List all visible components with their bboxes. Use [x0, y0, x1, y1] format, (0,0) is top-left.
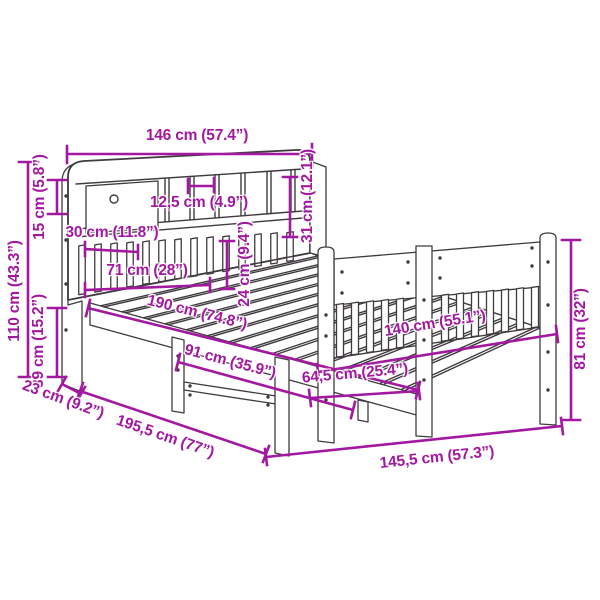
dim-label-110: 110 cm (43.3”) [6, 240, 24, 341]
dimension-diagram: 146 cm (57.4”) 110 cm (43.3”) 15 cm (5.8… [0, 0, 600, 600]
dim-label-81: 81 cm (32”) [572, 288, 590, 369]
dim-label-30: 30 cm (11.8”) [65, 224, 158, 242]
side-leg [172, 337, 184, 413]
dim-label-146: 146 cm (57.4”) [146, 127, 248, 145]
dim-label-15: 15 cm (5.8”) [31, 154, 49, 239]
dim-label-24: 24 cm (9.4”) [236, 221, 254, 306]
front-corner-leg [275, 357, 289, 456]
dim-label-31: 31 cm (12.1”) [299, 149, 317, 243]
footboard-near-post [318, 247, 334, 443]
dim-label-12-5: 12,5 cm (4.9”) [150, 194, 248, 212]
center-support-leg [358, 400, 368, 422]
dim-label-39: 39 cm (15.2”) [30, 294, 48, 388]
bed-line-drawing [0, 0, 600, 600]
dim-label-71: 71 cm (28”) [106, 262, 187, 280]
